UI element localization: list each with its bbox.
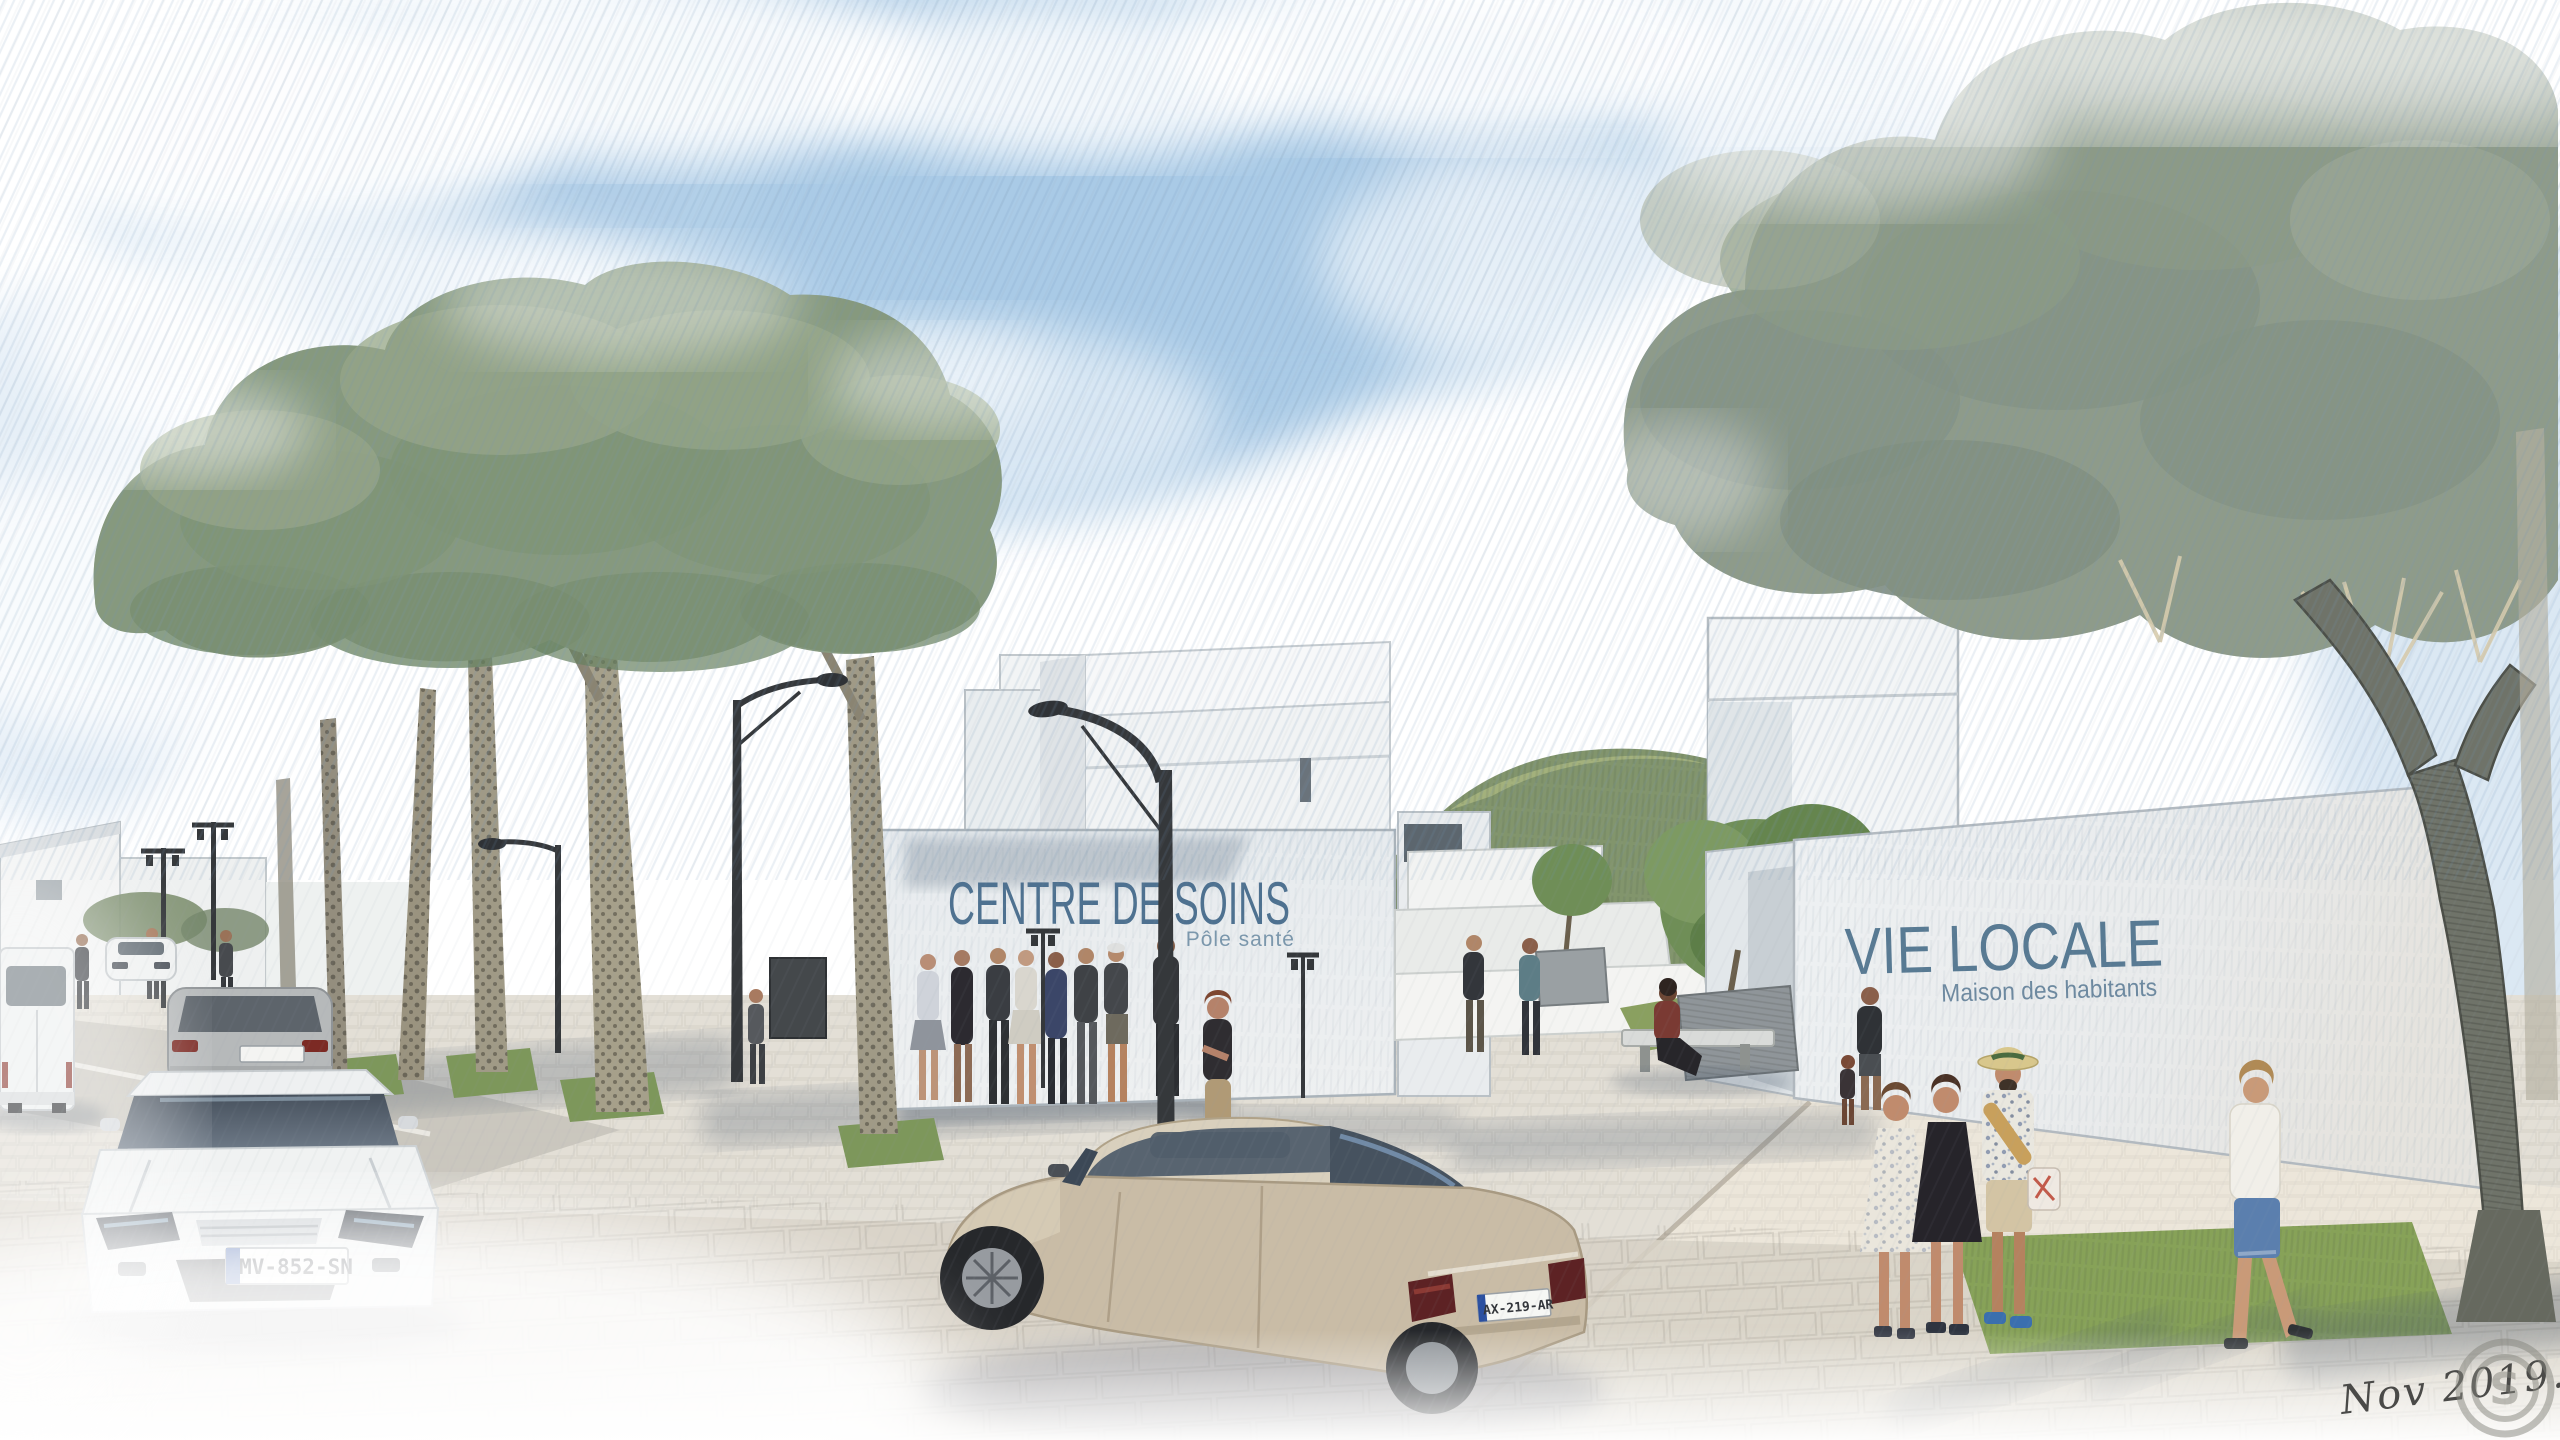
- rendering-canvas: CENTRE DE SOINS Pôle santé VIE LOCALE Ma…: [0, 0, 2560, 1440]
- bottom-fade: [0, 1330, 2560, 1440]
- sketch-texture-overlay: [0, 0, 2560, 1440]
- watermark-letter: S: [2489, 1364, 2521, 1415]
- watermark-logo: S: [2459, 1342, 2551, 1434]
